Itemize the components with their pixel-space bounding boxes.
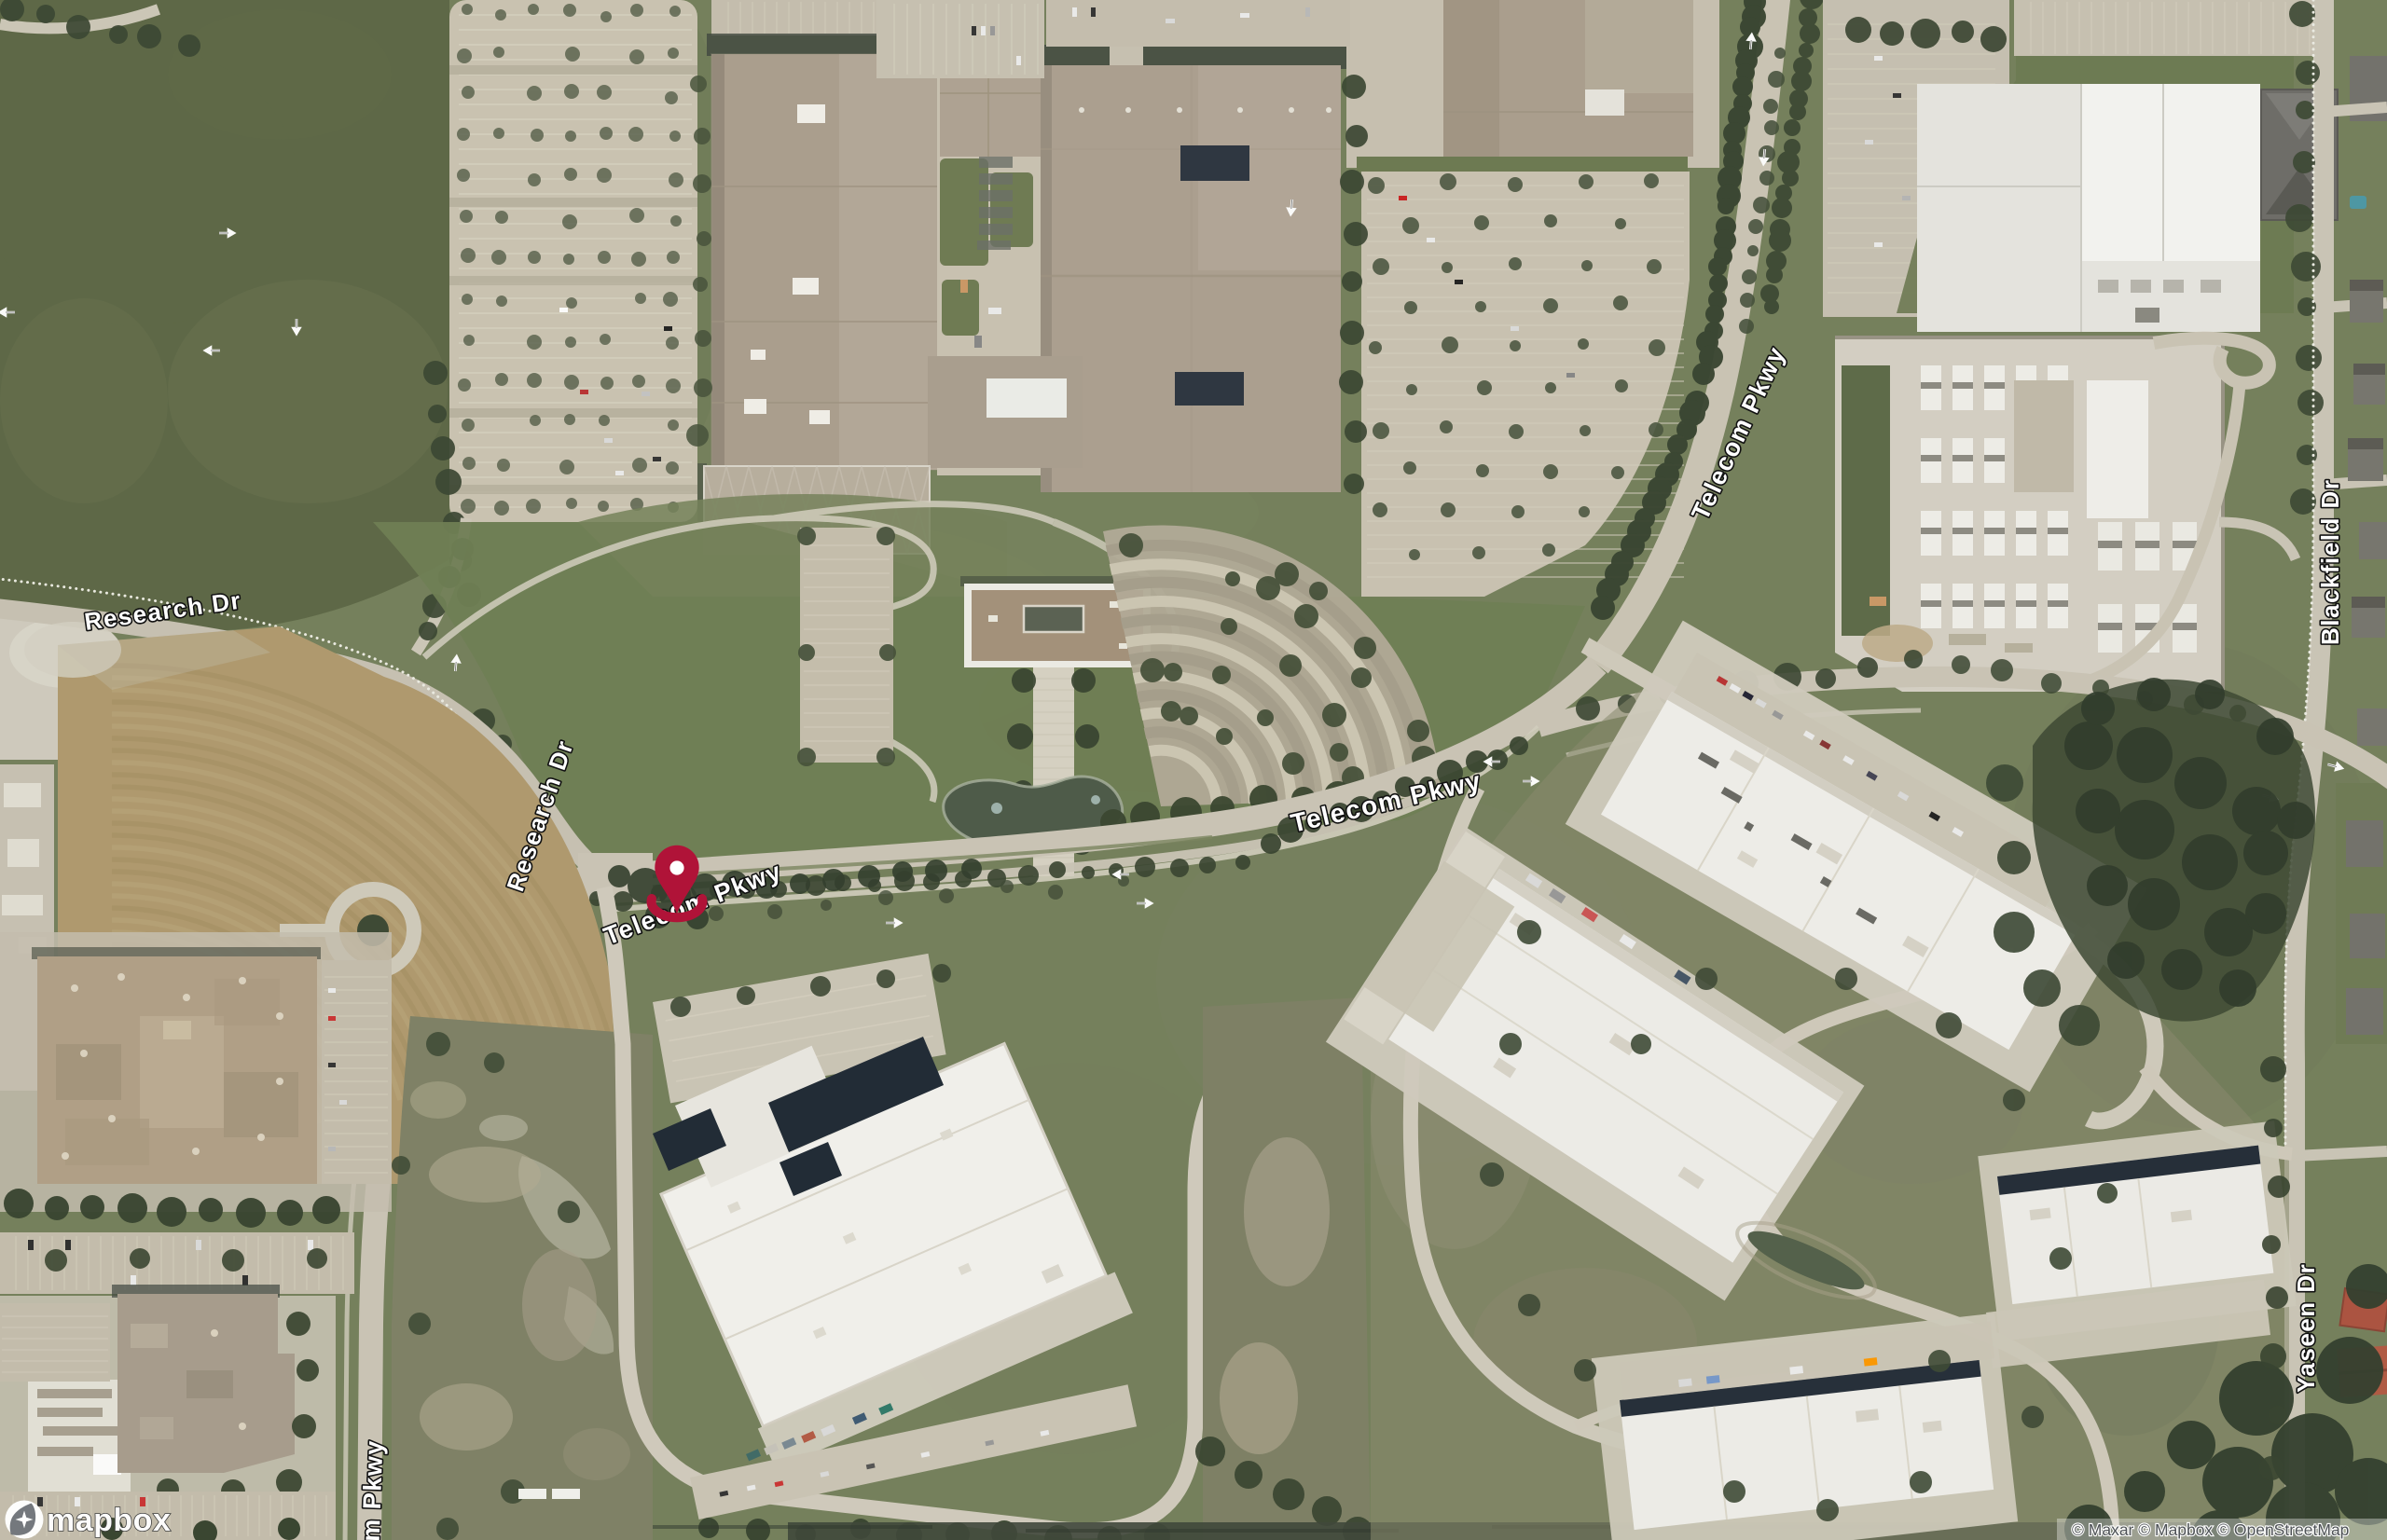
svg-text:Yaseen Dr: Yaseen Dr	[2292, 1263, 2320, 1393]
svg-text:© Maxar © Mapbox © OpenStreetM: © Maxar © Mapbox © OpenStreetMap	[2072, 1520, 2349, 1539]
svg-text:Blackfield Dr: Blackfield Dr	[2316, 479, 2344, 645]
svg-text:mapbox: mapbox	[47, 1503, 171, 1538]
svg-text:om Pkwy: om Pkwy	[356, 1439, 388, 1540]
